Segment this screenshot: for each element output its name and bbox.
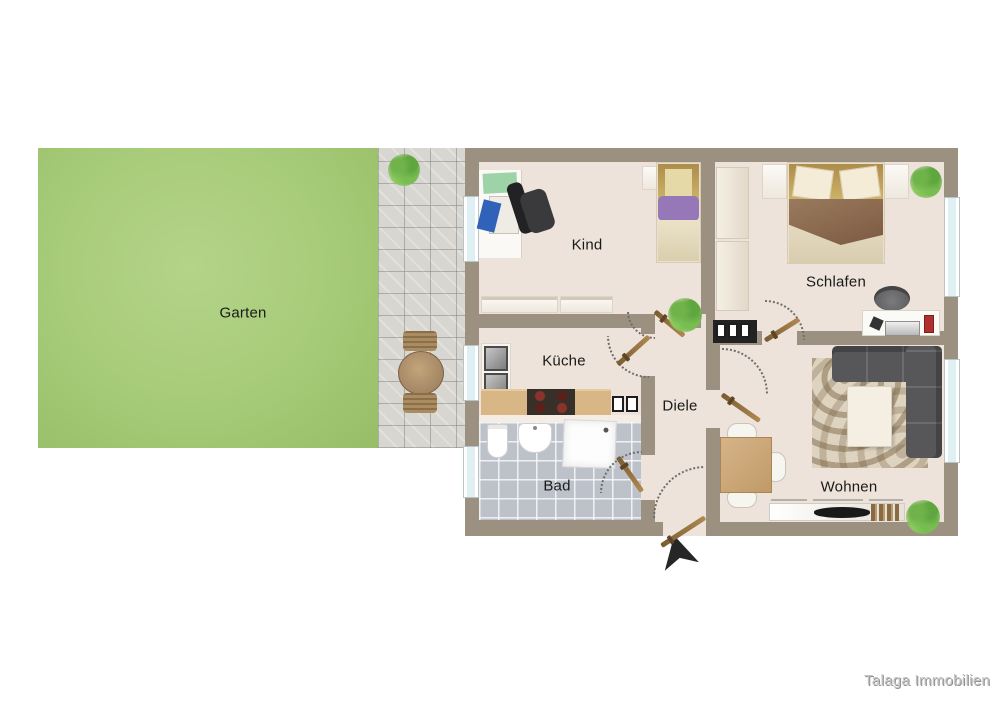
desk-icon [862,310,940,336]
door-gap-bad [641,455,655,500]
watermark-text: Talaga Immobilien [864,672,990,689]
book-icon [924,315,934,333]
plant-icon [668,298,702,332]
shelf-line [813,499,863,501]
plant-icon [388,154,420,186]
tv-icon [814,507,870,518]
faucet-dot [533,426,537,430]
wardrobe-icon [716,241,749,311]
room-label-wohnen: Wohnen [821,479,878,496]
washbasin-icon [518,423,552,453]
chair-icon [727,492,757,508]
blanket-icon [658,220,699,261]
coffee-table-icon [847,386,892,447]
shower-icon [562,419,617,469]
garden-table-icon [398,351,444,395]
shelf-line [771,499,807,501]
room-label-bad: Bad [543,478,570,495]
corner-sofa-icon [906,346,942,458]
sink-basin [484,346,508,371]
dining-table-icon [720,437,772,493]
dresser-drawer [740,323,750,338]
garden-area [38,148,378,448]
headboard-panel [665,169,692,196]
cabinet-icon [612,396,641,414]
cabinet-box [626,396,638,412]
room-label-kind: Kind [572,237,603,254]
room-label-kueche: Küche [542,353,586,370]
pillow-icon [839,166,881,202]
window-icon [944,197,960,297]
double-bed-icon [787,162,885,264]
pillow-icon [658,196,699,221]
dresser-drawer [728,323,738,338]
garden-chair-icon [403,331,437,351]
cabinet-box [612,396,624,412]
floor-plan: Garten Kind Schlafen Küche Diele Bad Woh… [0,0,1000,706]
toilet-icon [487,424,508,458]
window-icon [944,359,960,463]
laptop-icon [885,321,920,336]
dresser-drawer [716,323,726,338]
sideboard-icon [481,296,558,313]
headboard-icon [658,164,699,200]
nightstand-icon [642,166,657,190]
pillow-icon [792,166,834,202]
drain-dot [603,427,608,432]
shelf-line [869,499,903,501]
door-gap-wohnen [706,390,720,428]
nightstand-icon [884,164,909,199]
garden-chair-icon [403,393,437,413]
window-icon [463,196,479,262]
dresser-icon [713,320,757,343]
stove-icon [527,389,575,415]
plant-icon [906,500,940,534]
sideboard-icon [560,296,613,313]
camera-icon [869,316,884,331]
window-icon [463,345,479,401]
nightstand-icon [762,164,787,199]
single-bed-icon [656,162,701,263]
books-icon [871,504,899,521]
chair-icon [770,452,786,482]
room-label-schlafen: Schlafen [806,274,866,291]
room-label-garten: Garten [219,305,266,322]
window-icon [463,446,479,498]
plant-icon [910,166,942,198]
wardrobe-icon [716,167,749,239]
chair-icon [874,286,910,311]
room-label-diele: Diele [662,398,697,415]
